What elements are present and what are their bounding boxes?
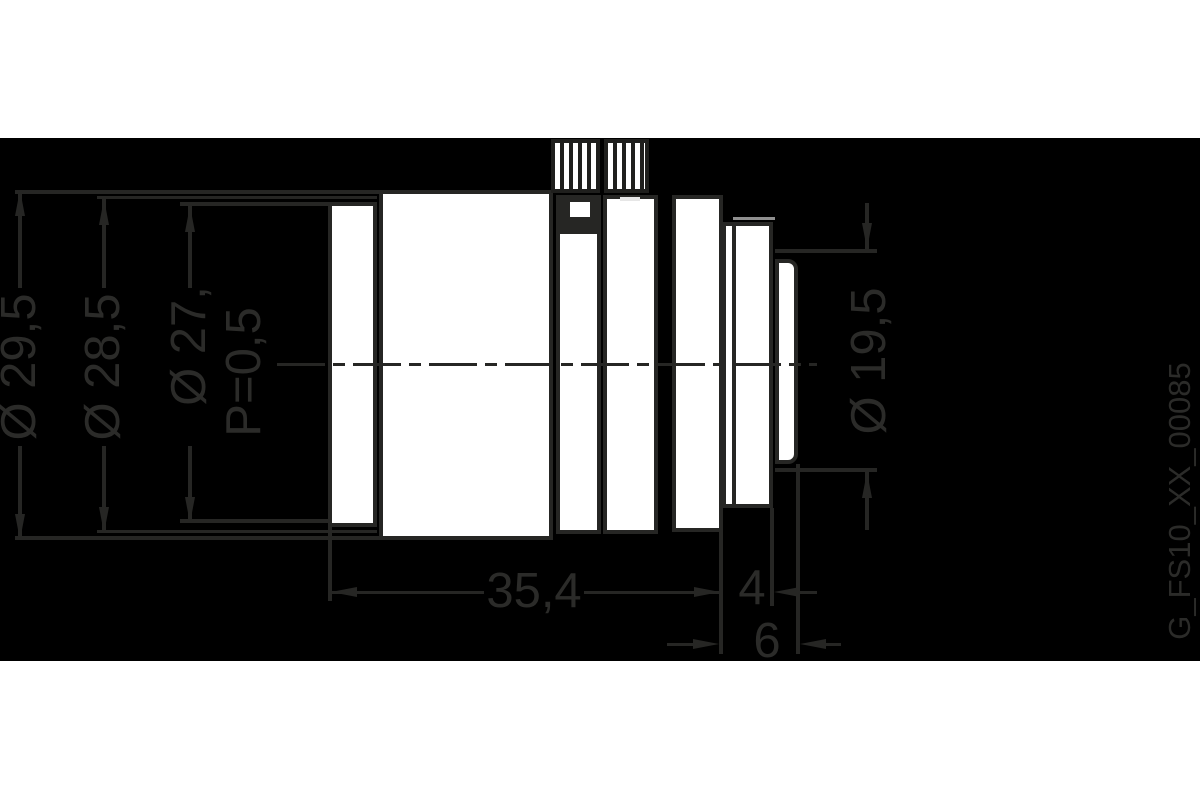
iris-knurled-knob [604, 139, 649, 193]
ext-27-bottom [180, 519, 330, 523]
ext-195-top [775, 249, 877, 253]
arrow-29-up [15, 190, 25, 216]
arrow-27-down [185, 497, 195, 523]
dimension-label-diameter-19-5: Ø 19,5 [845, 287, 895, 434]
drawing-id-caption: G_FS10_XX_00085 [1164, 362, 1196, 640]
arrow-4-left [774, 587, 800, 597]
dimension-label-length-6: 6 [753, 617, 780, 667]
iris-top-dash [620, 197, 640, 201]
ext-29-bottom [15, 536, 379, 540]
ext-27-top [180, 202, 330, 206]
dim-4-tail-right [800, 591, 817, 594]
ext-vert-rear-tip [796, 464, 800, 654]
arrow-195-up [862, 472, 872, 498]
dimension-label-diameter-29-5: Ø 29,5 [0, 293, 45, 440]
dimension-label-length-4: 4 [738, 564, 765, 614]
arrow-27-up [185, 206, 195, 232]
rear-thread-section [775, 259, 798, 464]
dimension-label-diameter-28-5: Ø 28,5 [79, 293, 129, 440]
lens-technical-drawing: Ø 29,5 Ø 28,5 Ø 27, P=0,5 Ø 19,5 35,4 4 … [0, 0, 1200, 800]
arrow-29-down [15, 514, 25, 540]
dim-6-tail-left [667, 643, 694, 646]
arrow-285-up [99, 199, 109, 225]
set-screw-head [570, 202, 590, 217]
flange-top-highlight [733, 217, 775, 220]
arrow-354-left [331, 587, 357, 597]
ext-285-bottom [97, 530, 377, 533]
ext-vert-flange-left [719, 508, 723, 654]
dimension-label-length-35-4: 35,4 [486, 567, 581, 617]
ext-29-top [15, 190, 379, 194]
center-axis-line [277, 363, 817, 366]
arrow-285-down [99, 507, 109, 533]
arrow-6-left [800, 639, 826, 649]
dim-6-tail-right [826, 643, 841, 646]
focus-knurled-knob [551, 139, 600, 193]
arrow-195-down [862, 223, 872, 249]
arrow-6-right [693, 639, 719, 649]
dimension-label-pitch-0-5: P=0,5 [220, 307, 270, 436]
arrow-354-right [694, 587, 720, 597]
dimension-label-diameter-27: Ø 27, [165, 286, 215, 406]
ext-285-top [97, 196, 377, 199]
